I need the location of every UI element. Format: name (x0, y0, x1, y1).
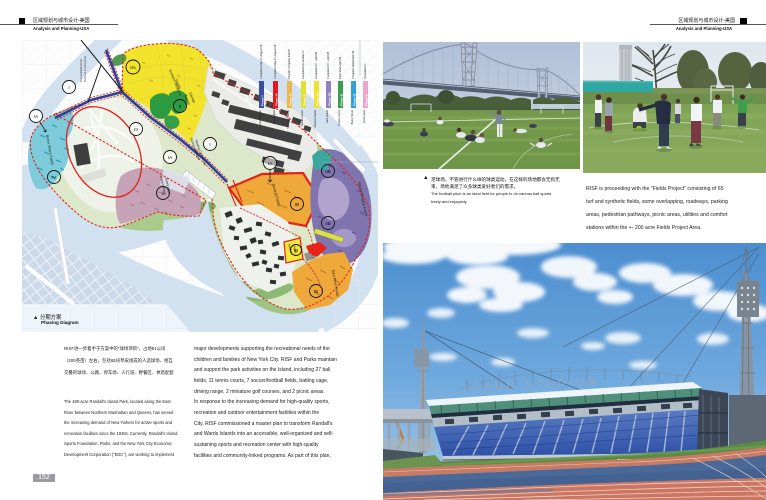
svg-text:IB: IB (294, 248, 298, 253)
svg-text:IB: IB (314, 289, 318, 294)
svg-text:Phase IB: Phase IB (289, 92, 293, 106)
svg-text:Complete September 08: Complete September 08 (351, 50, 355, 79)
svg-text:Completed May 07-August 08: Completed May 07-August 08 (273, 44, 277, 79)
svg-text:November 07: November 07 (363, 63, 367, 79)
svg-text:I: I (68, 85, 69, 90)
svg-text:Phase II: Phase II (303, 94, 307, 106)
svg-text:Partially Complete Fall 08: Partially Complete Fall 08 (287, 49, 291, 79)
svg-text:Event Area: Event Area (362, 109, 366, 122)
svg-text:Phase IIB: Phase IIB (328, 92, 332, 106)
svg-text:I: I (209, 142, 210, 147)
svg-text:Gate Fields: Gate Fields (325, 109, 329, 123)
svg-text:Phase IV: Phase IV (353, 93, 357, 106)
svg-text:Completed 07 - April 08: Completed 07 - April 08 (326, 51, 330, 79)
svg-text:III: III (134, 127, 138, 132)
svg-text:Phase V: Phase V (365, 94, 369, 106)
svg-text:Bronx Shore: Bronx Shore (350, 109, 354, 124)
svg-text:Tennis Courts: Tennis Courts (337, 109, 341, 126)
svg-text:Phase III: Phase III (340, 94, 344, 106)
svg-text:Phase IIA: Phase IIA (316, 92, 320, 106)
svg-text:Phase I: Phase I (261, 95, 265, 106)
svg-text:Completed November 07: Completed November 07 (301, 50, 305, 79)
svg-text:Fields Open: Fields Open (272, 109, 276, 124)
svg-text:Sportime Center: Sportime Center (286, 110, 290, 129)
svg-text:IIB: IIB (325, 169, 331, 174)
svg-text:II: II (179, 104, 182, 109)
svg-text:Meadow Fields: Meadow Fields (313, 109, 317, 127)
svg-text:Completed 07 - April 08: Completed 07 - April 08 (314, 51, 318, 79)
svg-text:IIA: IIA (130, 65, 137, 70)
svg-text:Tennis Center: Tennis Center (300, 110, 304, 126)
svg-text:Icahn Stadium: Icahn Stadium (258, 110, 262, 127)
svg-text:IIB: IIB (325, 221, 331, 226)
svg-text:Point of Connection: Point of Connection (83, 55, 87, 82)
svg-text:IB: IB (295, 202, 299, 207)
svg-text:Completed May 07-August 08: Completed May 07-August 08 (259, 44, 263, 79)
svg-text:Early Work April 08: Early Work April 08 (338, 56, 342, 79)
svg-text:Phase IA: Phase IA (275, 92, 279, 106)
